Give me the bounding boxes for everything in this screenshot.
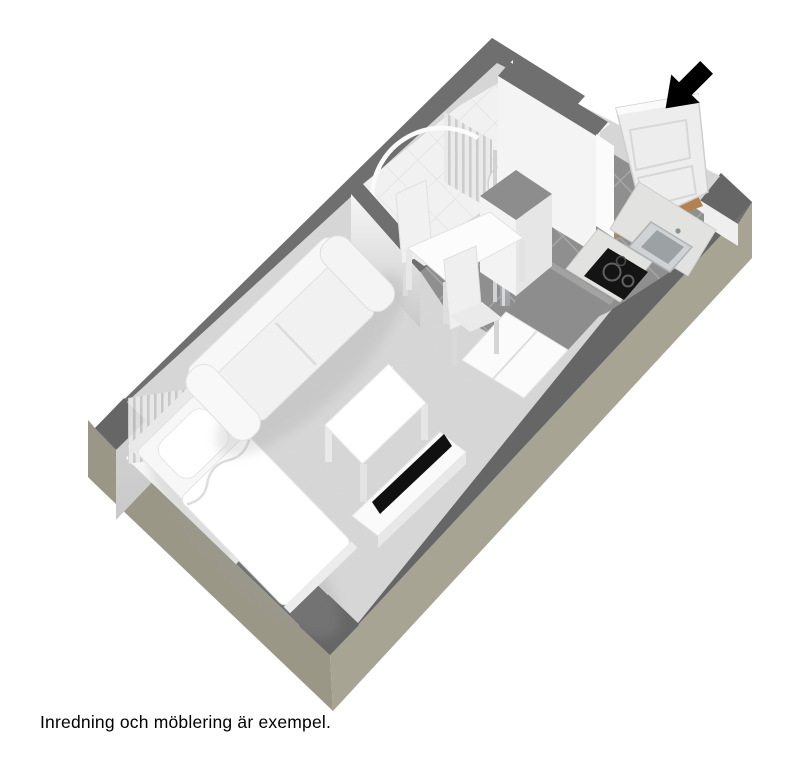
- exterior-wall-corner-sliver: [88, 420, 95, 484]
- floorplan-3d-rendering: [0, 0, 800, 774]
- faucet: [675, 228, 680, 233]
- entrance-door-frame: [596, 134, 614, 238]
- floorplan-page: Inredning och möblering är exempel.: [0, 0, 800, 774]
- disclaimer-caption: Inredning och möblering är exempel.: [40, 712, 331, 733]
